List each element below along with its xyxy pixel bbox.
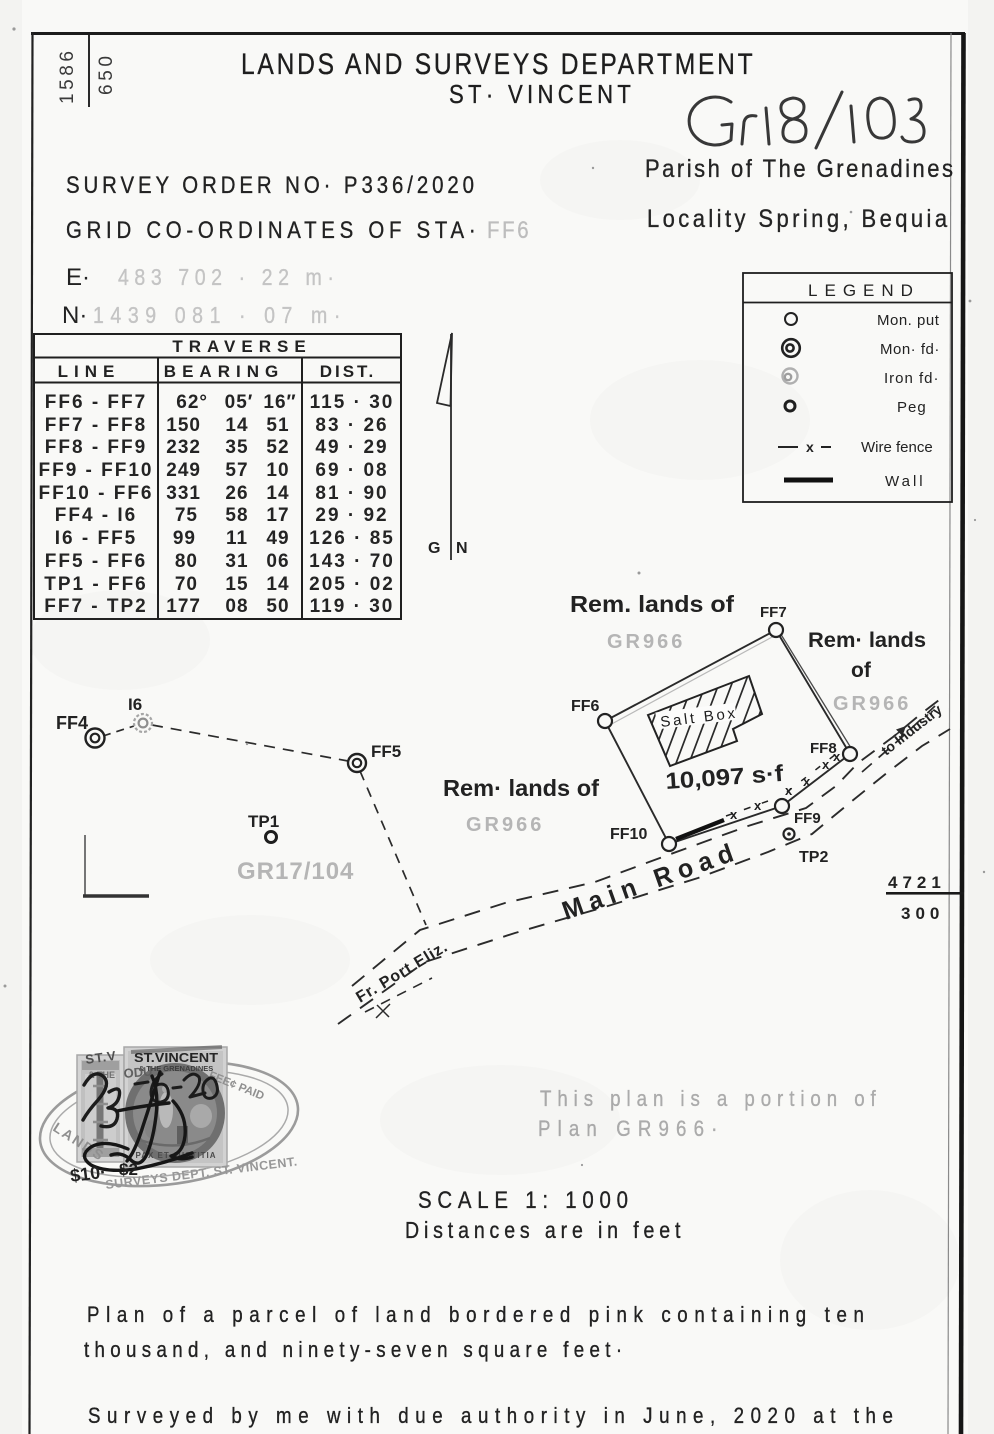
svg-text:ODU: ODU (123, 1064, 153, 1081)
svg-text:Rem. lands of: Rem. lands of (570, 591, 734, 617)
svg-text:Wire fence: Wire fence (861, 439, 933, 456)
svg-text:$2: $2 (119, 1160, 138, 1179)
svg-text:57: 57 (225, 460, 248, 481)
svg-text:FF4: FF4 (56, 713, 88, 733)
svg-text:1586: 1586 (57, 48, 78, 104)
svg-text:x: x (803, 774, 811, 789)
svg-text:FF7 - FF8: FF7 - FF8 (45, 415, 147, 436)
svg-text:69 · 08: 69 · 08 (315, 460, 388, 481)
svg-text:LINE: LINE (58, 362, 121, 381)
svg-text:Iron fd·: Iron fd· (884, 370, 940, 387)
svg-text:FF8 - FF9: FF8 - FF9 (45, 437, 147, 458)
svg-text:75: 75 (175, 505, 198, 526)
svg-text:FF10: FF10 (610, 826, 647, 843)
svg-text:G: G (428, 540, 440, 557)
svg-text:FF9: FF9 (794, 810, 821, 827)
svg-text:29 · 92: 29 · 92 (315, 505, 388, 526)
svg-text:51: 51 (266, 415, 289, 436)
svg-text:99: 99 (173, 528, 196, 549)
svg-text:FF5: FF5 (371, 742, 401, 761)
svg-text:TP1: TP1 (248, 812, 279, 831)
svg-text:I6: I6 (128, 695, 142, 714)
svg-text:49: 49 (266, 528, 289, 549)
svg-text:08: 08 (225, 596, 248, 617)
svg-text:331: 331 (166, 483, 201, 504)
svg-text:83 · 26: 83 · 26 (315, 415, 388, 436)
svg-text:E·: E· (66, 264, 90, 291)
svg-text:150: 150 (166, 415, 201, 436)
svg-text:62°: 62° (176, 392, 208, 413)
svg-text:I6 - FF5: I6 - FF5 (55, 528, 138, 549)
svg-text:N·: N· (62, 302, 87, 329)
svg-text:Locality Spring, Bequia: Locality Spring, Bequia (647, 205, 948, 233)
svg-text:Rem· lands: Rem· lands (808, 629, 926, 652)
svg-text:650: 650 (96, 53, 117, 95)
svg-text:17: 17 (266, 505, 289, 526)
svg-text:49 · 29: 49 · 29 (315, 437, 388, 458)
svg-text:11: 11 (226, 528, 248, 549)
svg-text:x: x (806, 439, 814, 455)
svg-text:06: 06 (266, 551, 289, 572)
svg-text:FF4 - I6: FF4 - I6 (55, 505, 138, 526)
svg-text:143 · 70: 143 · 70 (309, 551, 395, 572)
svg-text:26: 26 (225, 483, 248, 504)
svg-text:FF6 - FF7: FF6 - FF7 (45, 392, 147, 413)
svg-text:x: x (754, 798, 762, 813)
svg-text:Wall: Wall (885, 473, 926, 490)
svg-text:126 · 85: 126 · 85 (309, 528, 395, 549)
svg-text:GR17/104: GR17/104 (237, 858, 354, 885)
svg-text:15: 15 (225, 574, 248, 595)
svg-text:115 · 30: 115 · 30 (310, 392, 395, 413)
svg-text:Mon· fd·: Mon· fd· (880, 341, 940, 358)
svg-text:31: 31 (225, 551, 248, 572)
svg-text:LANDS AND SURVEYS DEPARTMENT: LANDS AND SURVEYS DEPARTMENT (241, 47, 753, 81)
svg-text:300: 300 (901, 904, 944, 923)
svg-text:FF9 - FF10: FF9 - FF10 (38, 460, 153, 481)
svg-text:10: 10 (266, 460, 289, 481)
svg-text:Peg: Peg (897, 399, 927, 416)
svg-text:GR966: GR966 (607, 631, 685, 653)
svg-text:BEARING: BEARING (164, 362, 284, 381)
svg-text:35: 35 (225, 437, 248, 458)
svg-text:FF7: FF7 (760, 604, 787, 621)
svg-text:FF5 - FF6: FF5 - FF6 (45, 551, 147, 572)
svg-text:of: of (851, 659, 872, 682)
svg-text:05′: 05′ (225, 392, 254, 413)
svg-text:Mon. put: Mon. put (877, 312, 940, 329)
svg-text:thousand, and ninety-seven squ: thousand, and ninety-seven square feet· (84, 1339, 622, 1363)
svg-text:SURVEY ORDER NO· P336/2020: SURVEY ORDER NO· P336/2020 (66, 171, 474, 198)
svg-text:GR966: GR966 (466, 814, 544, 836)
svg-text:80: 80 (175, 551, 198, 572)
svg-text:x: x (822, 757, 830, 772)
svg-text:FF6: FF6 (571, 698, 600, 715)
svg-text:14: 14 (266, 483, 289, 504)
svg-text:52: 52 (266, 437, 289, 458)
svg-text:FF8: FF8 (810, 740, 837, 757)
svg-text:Rem· lands of: Rem· lands of (443, 775, 599, 801)
svg-text:FF6: FF6 (487, 216, 529, 243)
svg-text:14: 14 (225, 415, 248, 436)
svg-text:249: 249 (166, 460, 201, 481)
svg-text:1439 081 · 07 m·: 1439 081 · 07 m· (93, 303, 340, 329)
svg-text:TRAVERSE: TRAVERSE (172, 337, 311, 356)
svg-text:GR966: GR966 (833, 693, 911, 715)
svg-text:LEGEND: LEGEND (808, 281, 920, 300)
svg-text:205 · 02: 205 · 02 (309, 574, 395, 595)
svg-text:16″: 16″ (263, 392, 296, 413)
svg-text:232: 232 (166, 437, 201, 458)
svg-text:x: x (730, 807, 738, 822)
svg-text:TP2: TP2 (799, 849, 828, 866)
svg-text:DIST.: DIST. (320, 362, 377, 381)
svg-text:81 · 90: 81 · 90 (315, 483, 388, 504)
svg-text:4721: 4721 (888, 873, 946, 892)
svg-text:ST.VINCENT: ST.VINCENT (134, 1051, 218, 1065)
svg-text:14: 14 (266, 574, 289, 595)
svg-text:ST· VINCENT: ST· VINCENT (449, 80, 631, 109)
svg-text:x: x (785, 783, 793, 798)
svg-text:70: 70 (175, 574, 198, 595)
svg-text:50: 50 (266, 596, 289, 617)
svg-text:119 · 30: 119 · 30 (310, 596, 395, 617)
svg-text:FF10 - FF6: FF10 - FF6 (38, 483, 153, 504)
svg-text:58: 58 (225, 505, 248, 526)
svg-text:N: N (456, 540, 468, 557)
